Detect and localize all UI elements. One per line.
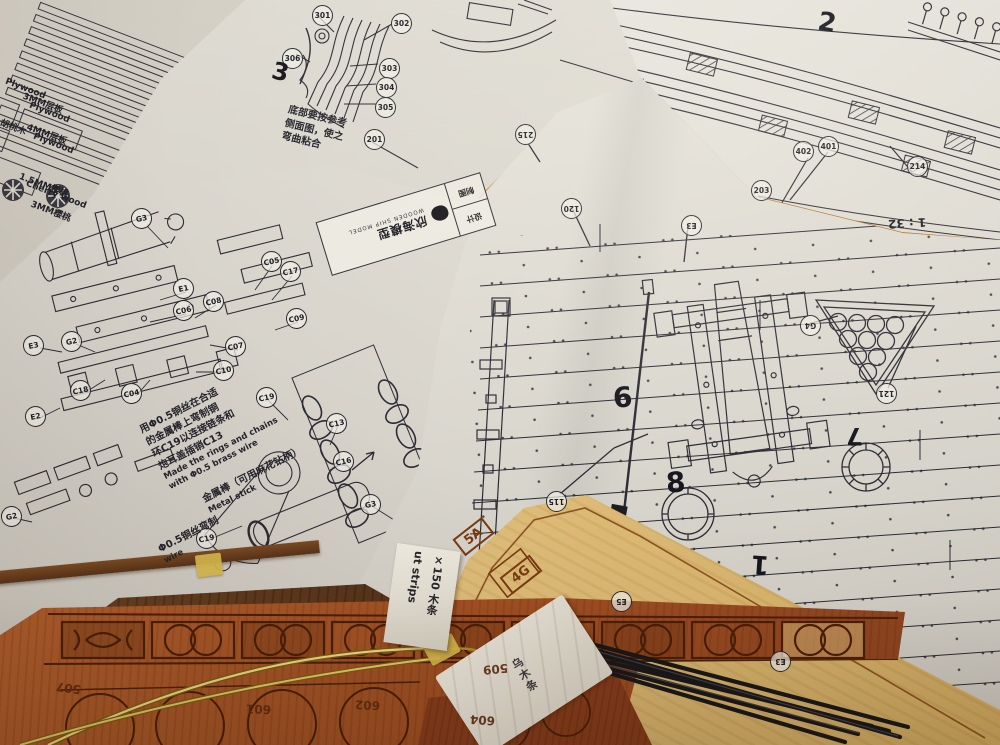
photo-ship-model-plans: 乌木条 ×150 木条 ut strips Plywood3MM层板Plywoo… [0,0,1000,745]
wood-sheet-mark: 5A [452,517,494,556]
wood-sheet-marks: 5A4G [0,0,1000,745]
wood-sheet-mark: 4G [500,555,543,595]
